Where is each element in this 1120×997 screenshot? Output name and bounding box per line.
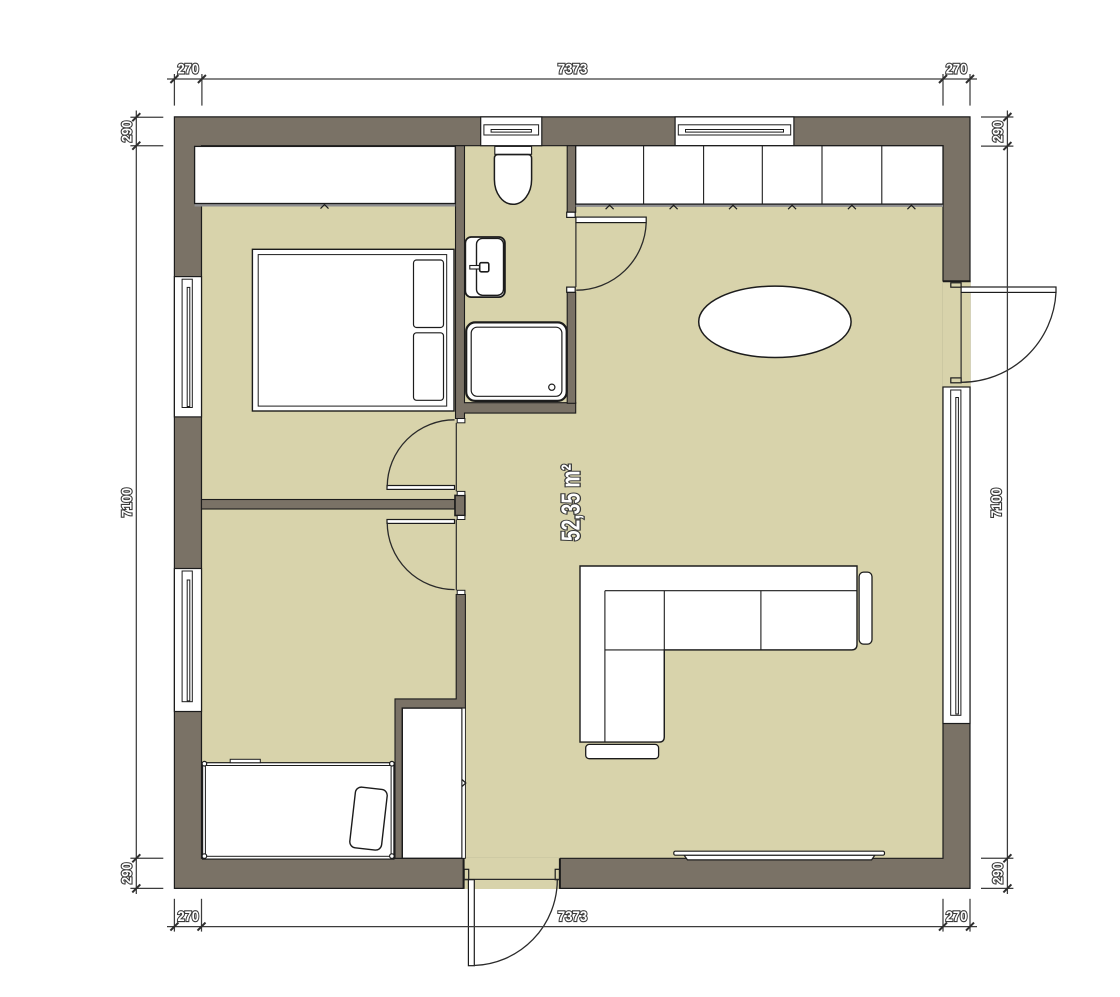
svg-text:52,35 m²: 52,35 m² (556, 464, 586, 541)
svg-text:7373: 7373 (558, 61, 588, 77)
svg-text:290: 290 (990, 121, 1006, 143)
svg-text:290: 290 (990, 862, 1006, 884)
svg-text:7100: 7100 (119, 488, 135, 518)
svg-text:290: 290 (119, 862, 135, 884)
svg-text:270: 270 (177, 908, 199, 924)
svg-text:7100: 7100 (988, 488, 1004, 518)
svg-text:270: 270 (946, 61, 968, 77)
svg-text:270: 270 (946, 908, 968, 924)
svg-text:7373: 7373 (558, 908, 588, 924)
svg-text:270: 270 (177, 61, 199, 77)
svg-text:290: 290 (119, 121, 135, 143)
